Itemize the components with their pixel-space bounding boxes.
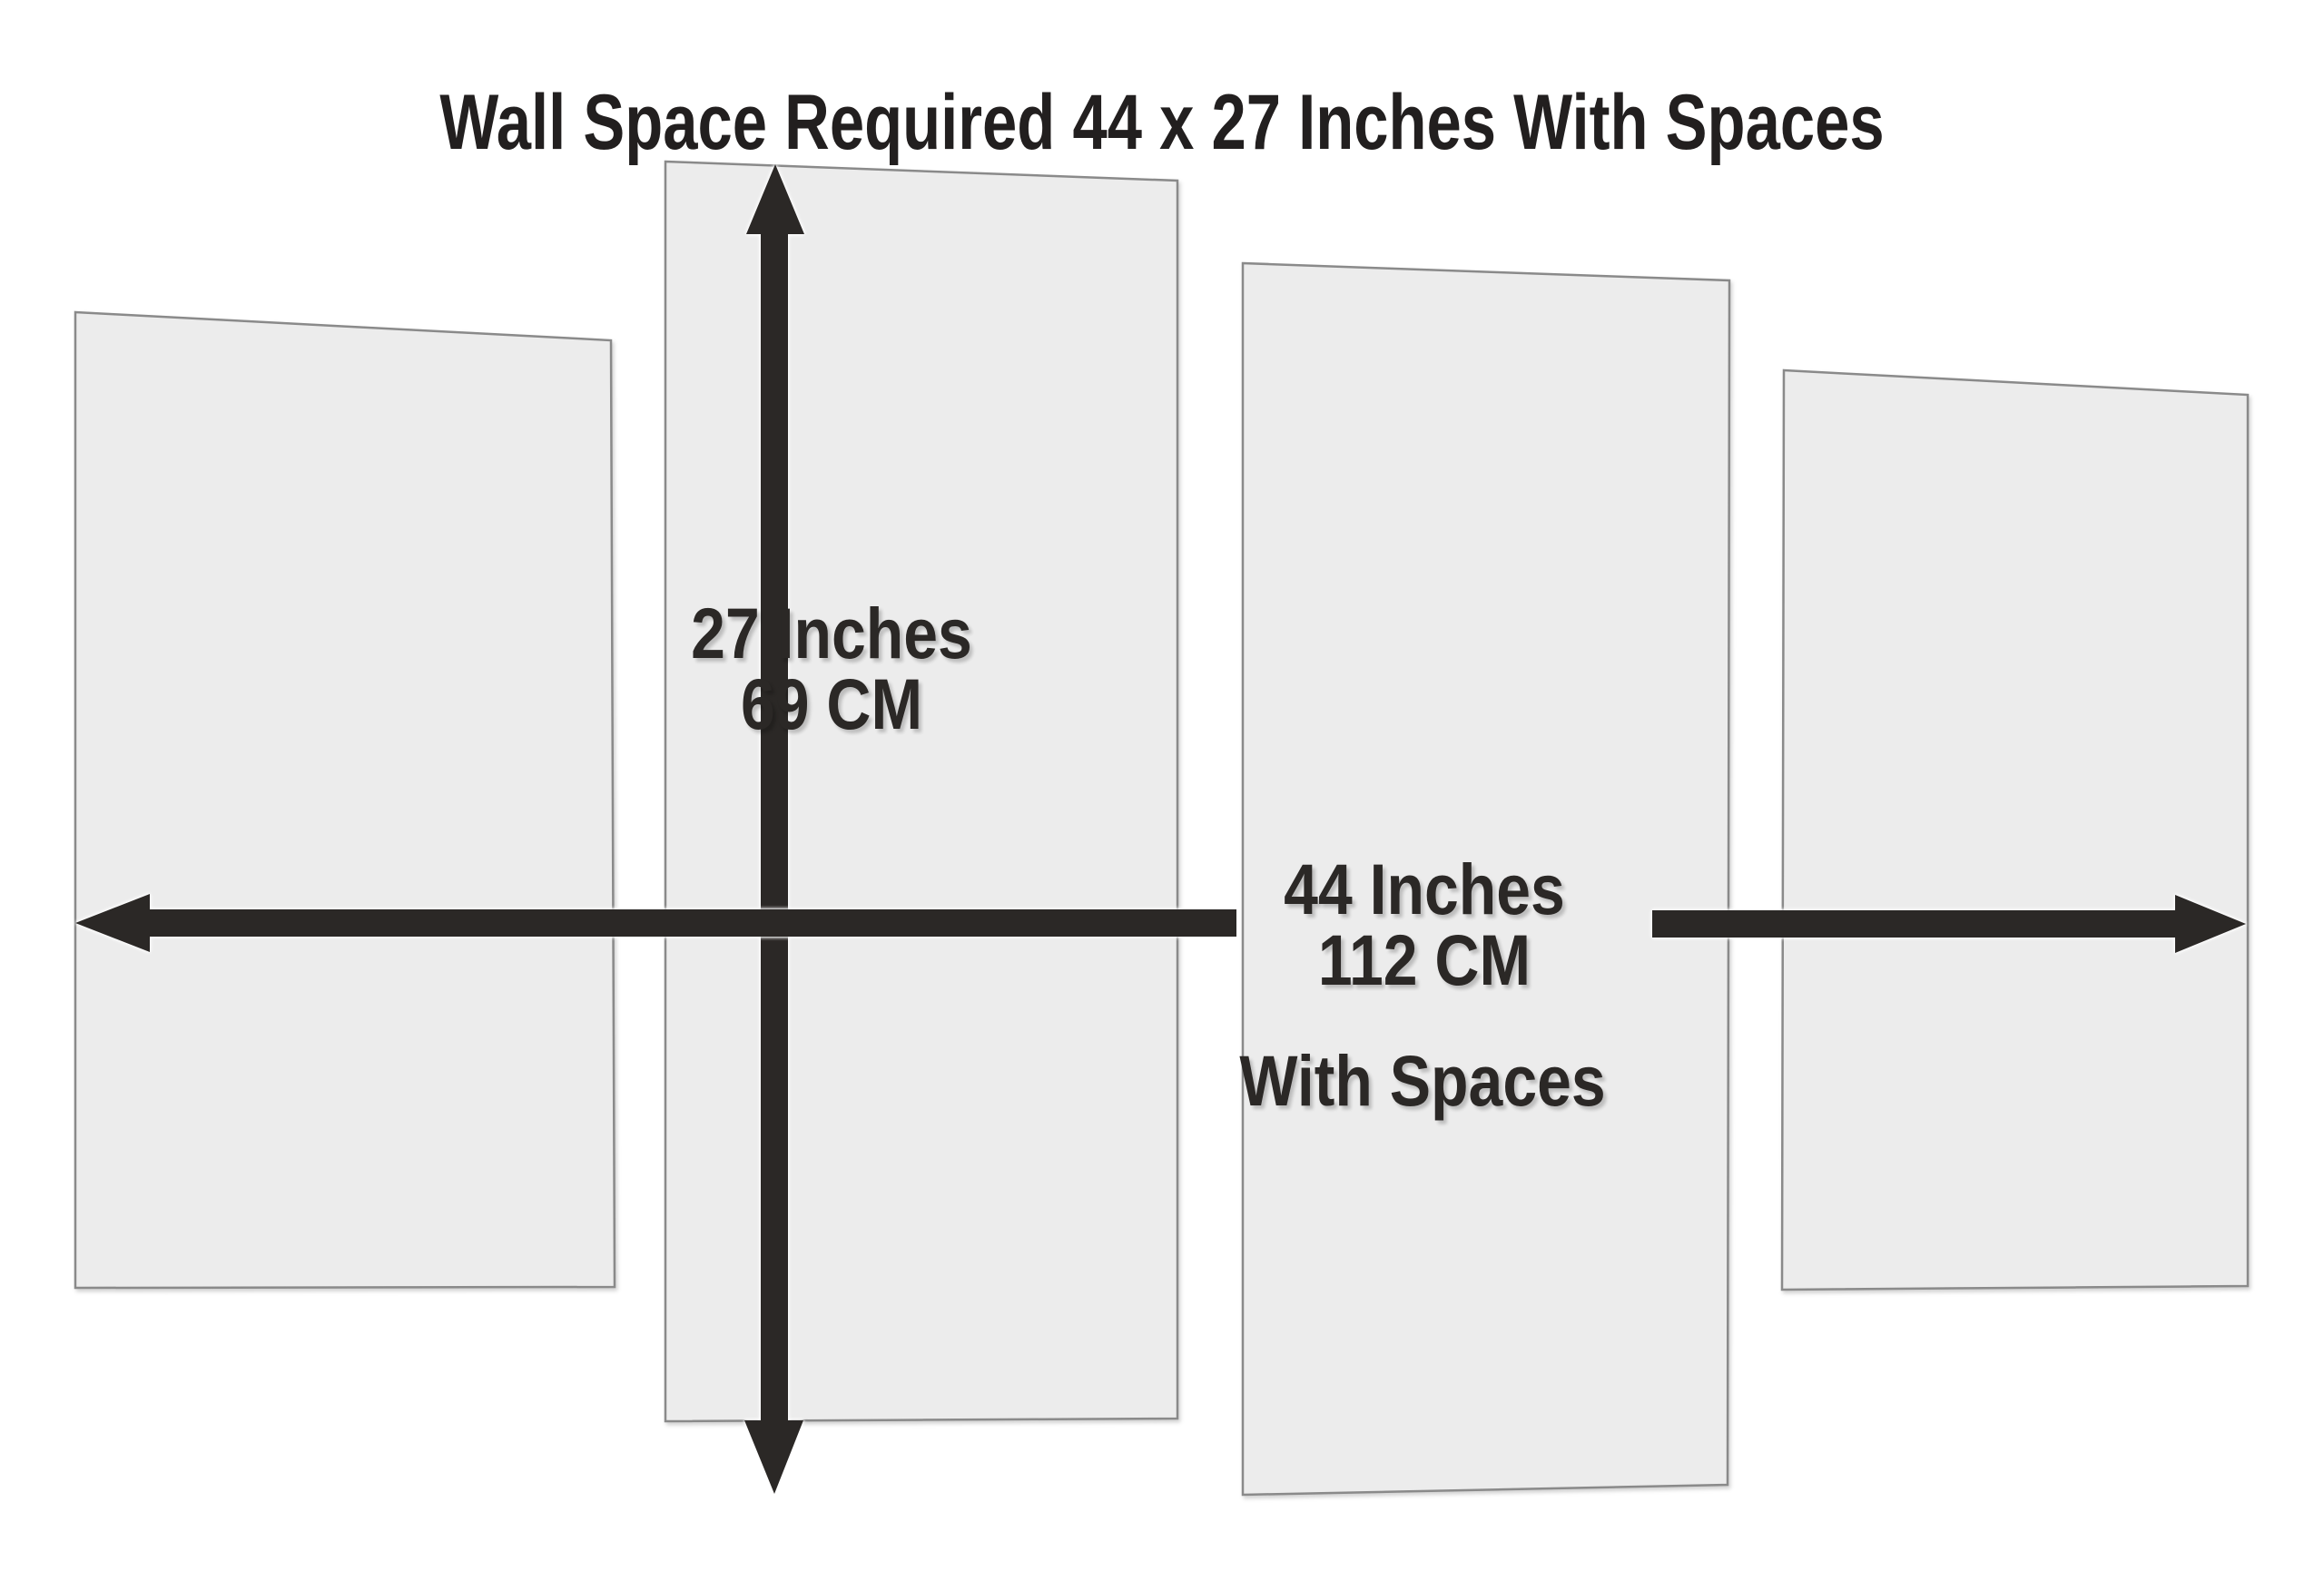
wall-art-panel-4 <box>1782 370 2248 1290</box>
diagram-title: Wall Space Required 44 x 27 Inches With … <box>232 82 2092 163</box>
wall-art-panel-1 <box>75 312 615 1288</box>
wall-art-panel-2 <box>665 162 1177 1421</box>
with-spaces-note: With Spaces <box>1188 1046 1657 1116</box>
wall-space-diagram: Wall Space Required 44 x 27 Inches With … <box>0 0 2324 1571</box>
horizontal-dimension-label: 44 Inches 112 CM <box>1190 854 1659 996</box>
with-spaces-text: With Spaces <box>1188 1046 1657 1116</box>
horizontal-dimension-inches: 44 Inches <box>1190 854 1659 925</box>
vertical-dimension-label: 27 Inches 69 CM <box>597 598 1066 740</box>
horizontal-dimension-cm: 112 CM <box>1190 925 1659 996</box>
canvas-panels <box>75 162 2248 1495</box>
panels-and-arrows-graphic <box>0 0 2324 1571</box>
vertical-dimension-inches: 27 Inches <box>597 598 1066 669</box>
vertical-dimension-cm: 69 CM <box>597 669 1066 740</box>
